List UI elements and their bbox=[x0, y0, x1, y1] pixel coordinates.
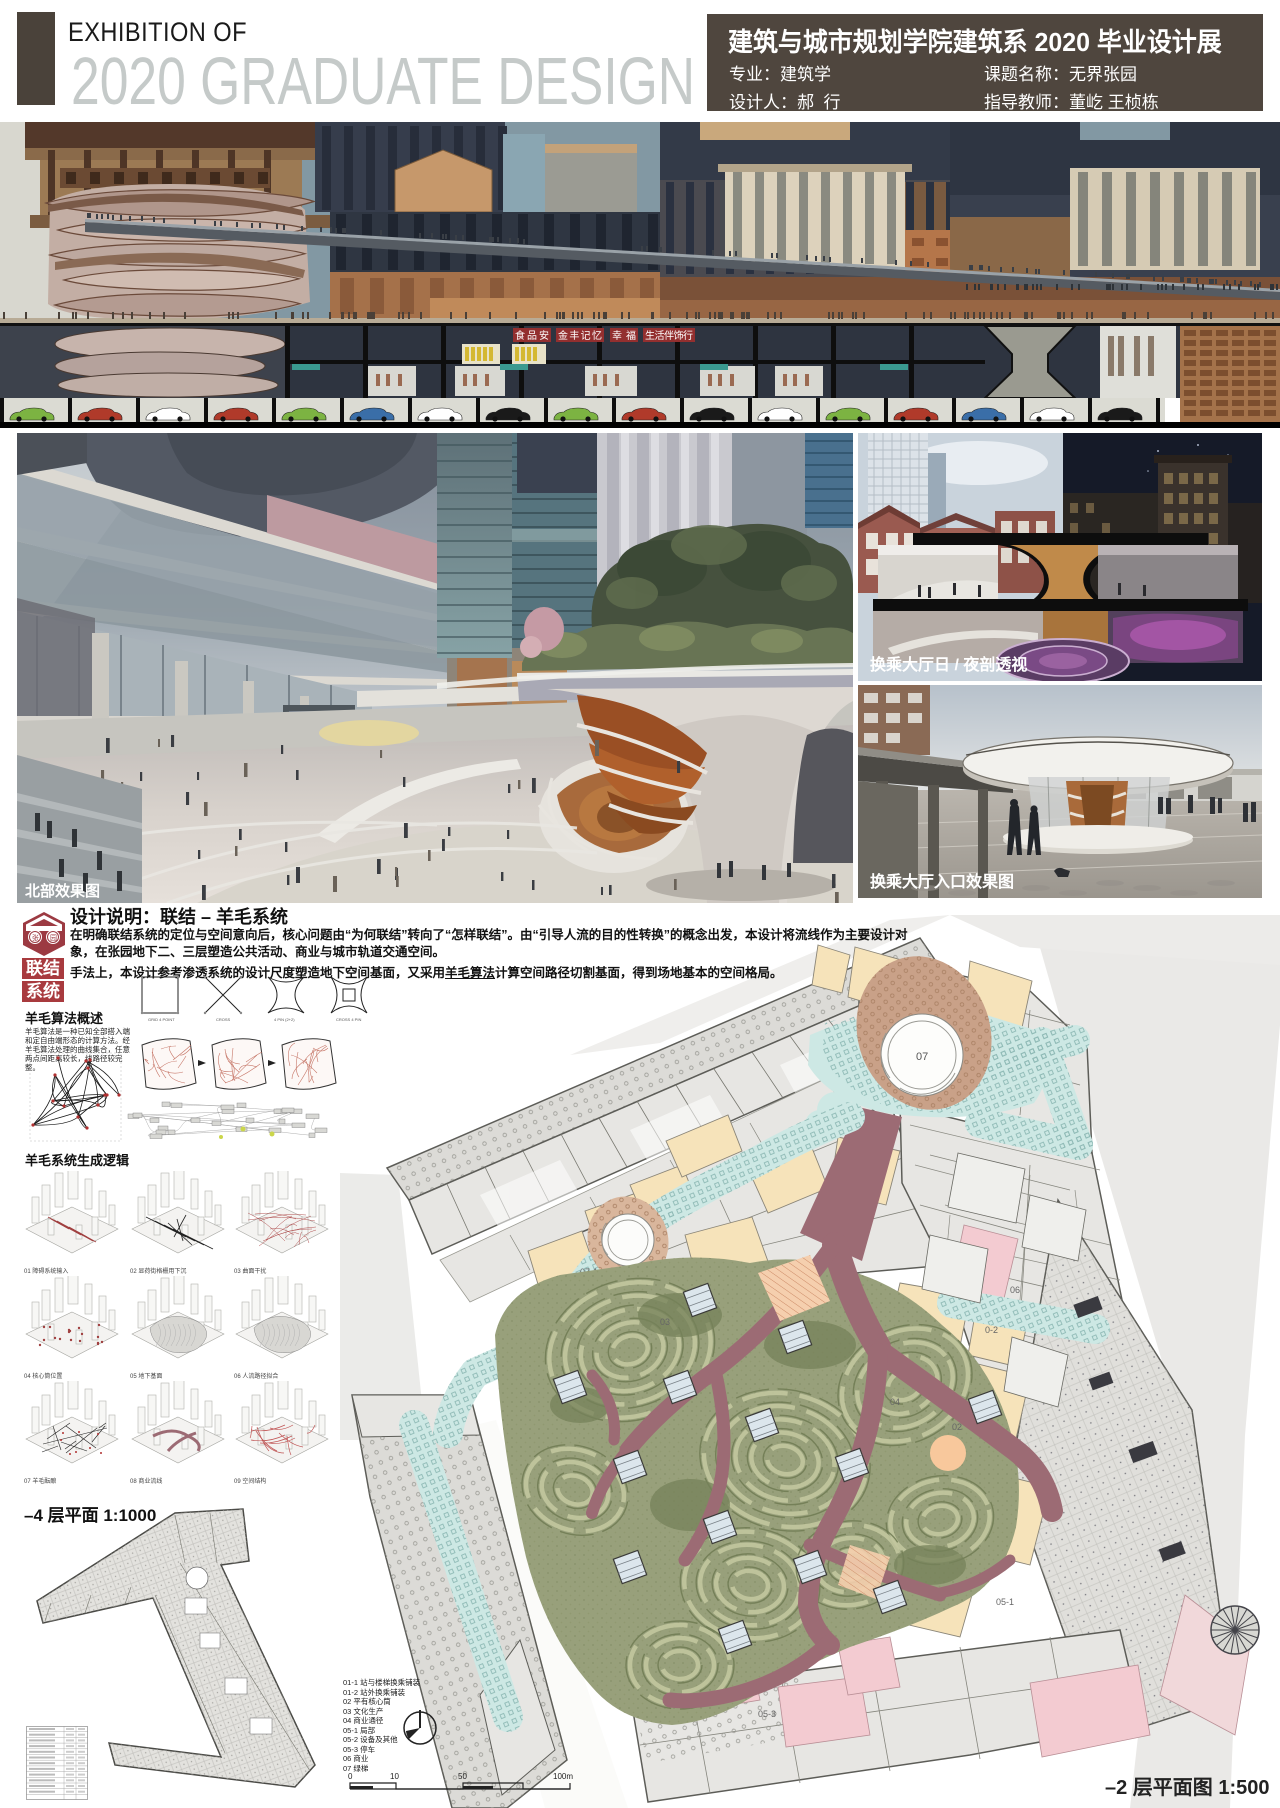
svg-text:GRID 4 POINT: GRID 4 POINT bbox=[148, 1017, 175, 1022]
svg-text:06 人流路径拟合: 06 人流路径拟合 bbox=[234, 1372, 278, 1380]
svg-text:01 障碍系统输入: 01 障碍系统输入 bbox=[24, 1267, 68, 1275]
svg-text:生活伴饰行: 生活伴饰行 bbox=[645, 329, 693, 342]
svg-text:10: 10 bbox=[390, 1772, 399, 1781]
svg-text:09 空间结构: 09 空间结构 bbox=[234, 1477, 266, 1485]
svg-text:张: 张 bbox=[32, 933, 39, 942]
svg-text:04 核心筒位置: 04 核心筒位置 bbox=[24, 1372, 62, 1380]
svg-text:CROSS 4 PIN: CROSS 4 PIN bbox=[336, 1017, 361, 1022]
svg-text:4 PIN (2+2): 4 PIN (2+2) bbox=[274, 1017, 295, 1022]
svg-text:02 显荷街格栅用下沉: 02 显荷街格栅用下沉 bbox=[130, 1267, 186, 1275]
svg-text:0: 0 bbox=[348, 1772, 353, 1781]
svg-text:换乘大厅日 / 夜剖透视: 换乘大厅日 / 夜剖透视 bbox=[870, 655, 1027, 674]
svg-text:08 商业流线: 08 商业流线 bbox=[130, 1477, 162, 1485]
svg-text:07 羊毛酝酿: 07 羊毛酝酿 bbox=[24, 1477, 56, 1485]
svg-text:05 地下基面: 05 地下基面 bbox=[130, 1372, 162, 1380]
svg-text:100m: 100m bbox=[553, 1772, 573, 1781]
svg-text:换乘大厅入口效果图: 换乘大厅入口效果图 bbox=[870, 872, 1014, 891]
svg-text:金丰记忆: 金丰记忆 bbox=[558, 329, 602, 342]
svg-text:园: 园 bbox=[50, 934, 57, 942]
svg-text:北部效果图: 北部效果图 bbox=[25, 882, 100, 900]
svg-text:03 曲面干扰: 03 曲面干扰 bbox=[234, 1267, 266, 1275]
svg-text:CROSS: CROSS bbox=[216, 1017, 231, 1022]
svg-text:50: 50 bbox=[458, 1772, 467, 1781]
svg-text:食品安: 食品安 bbox=[515, 329, 549, 342]
